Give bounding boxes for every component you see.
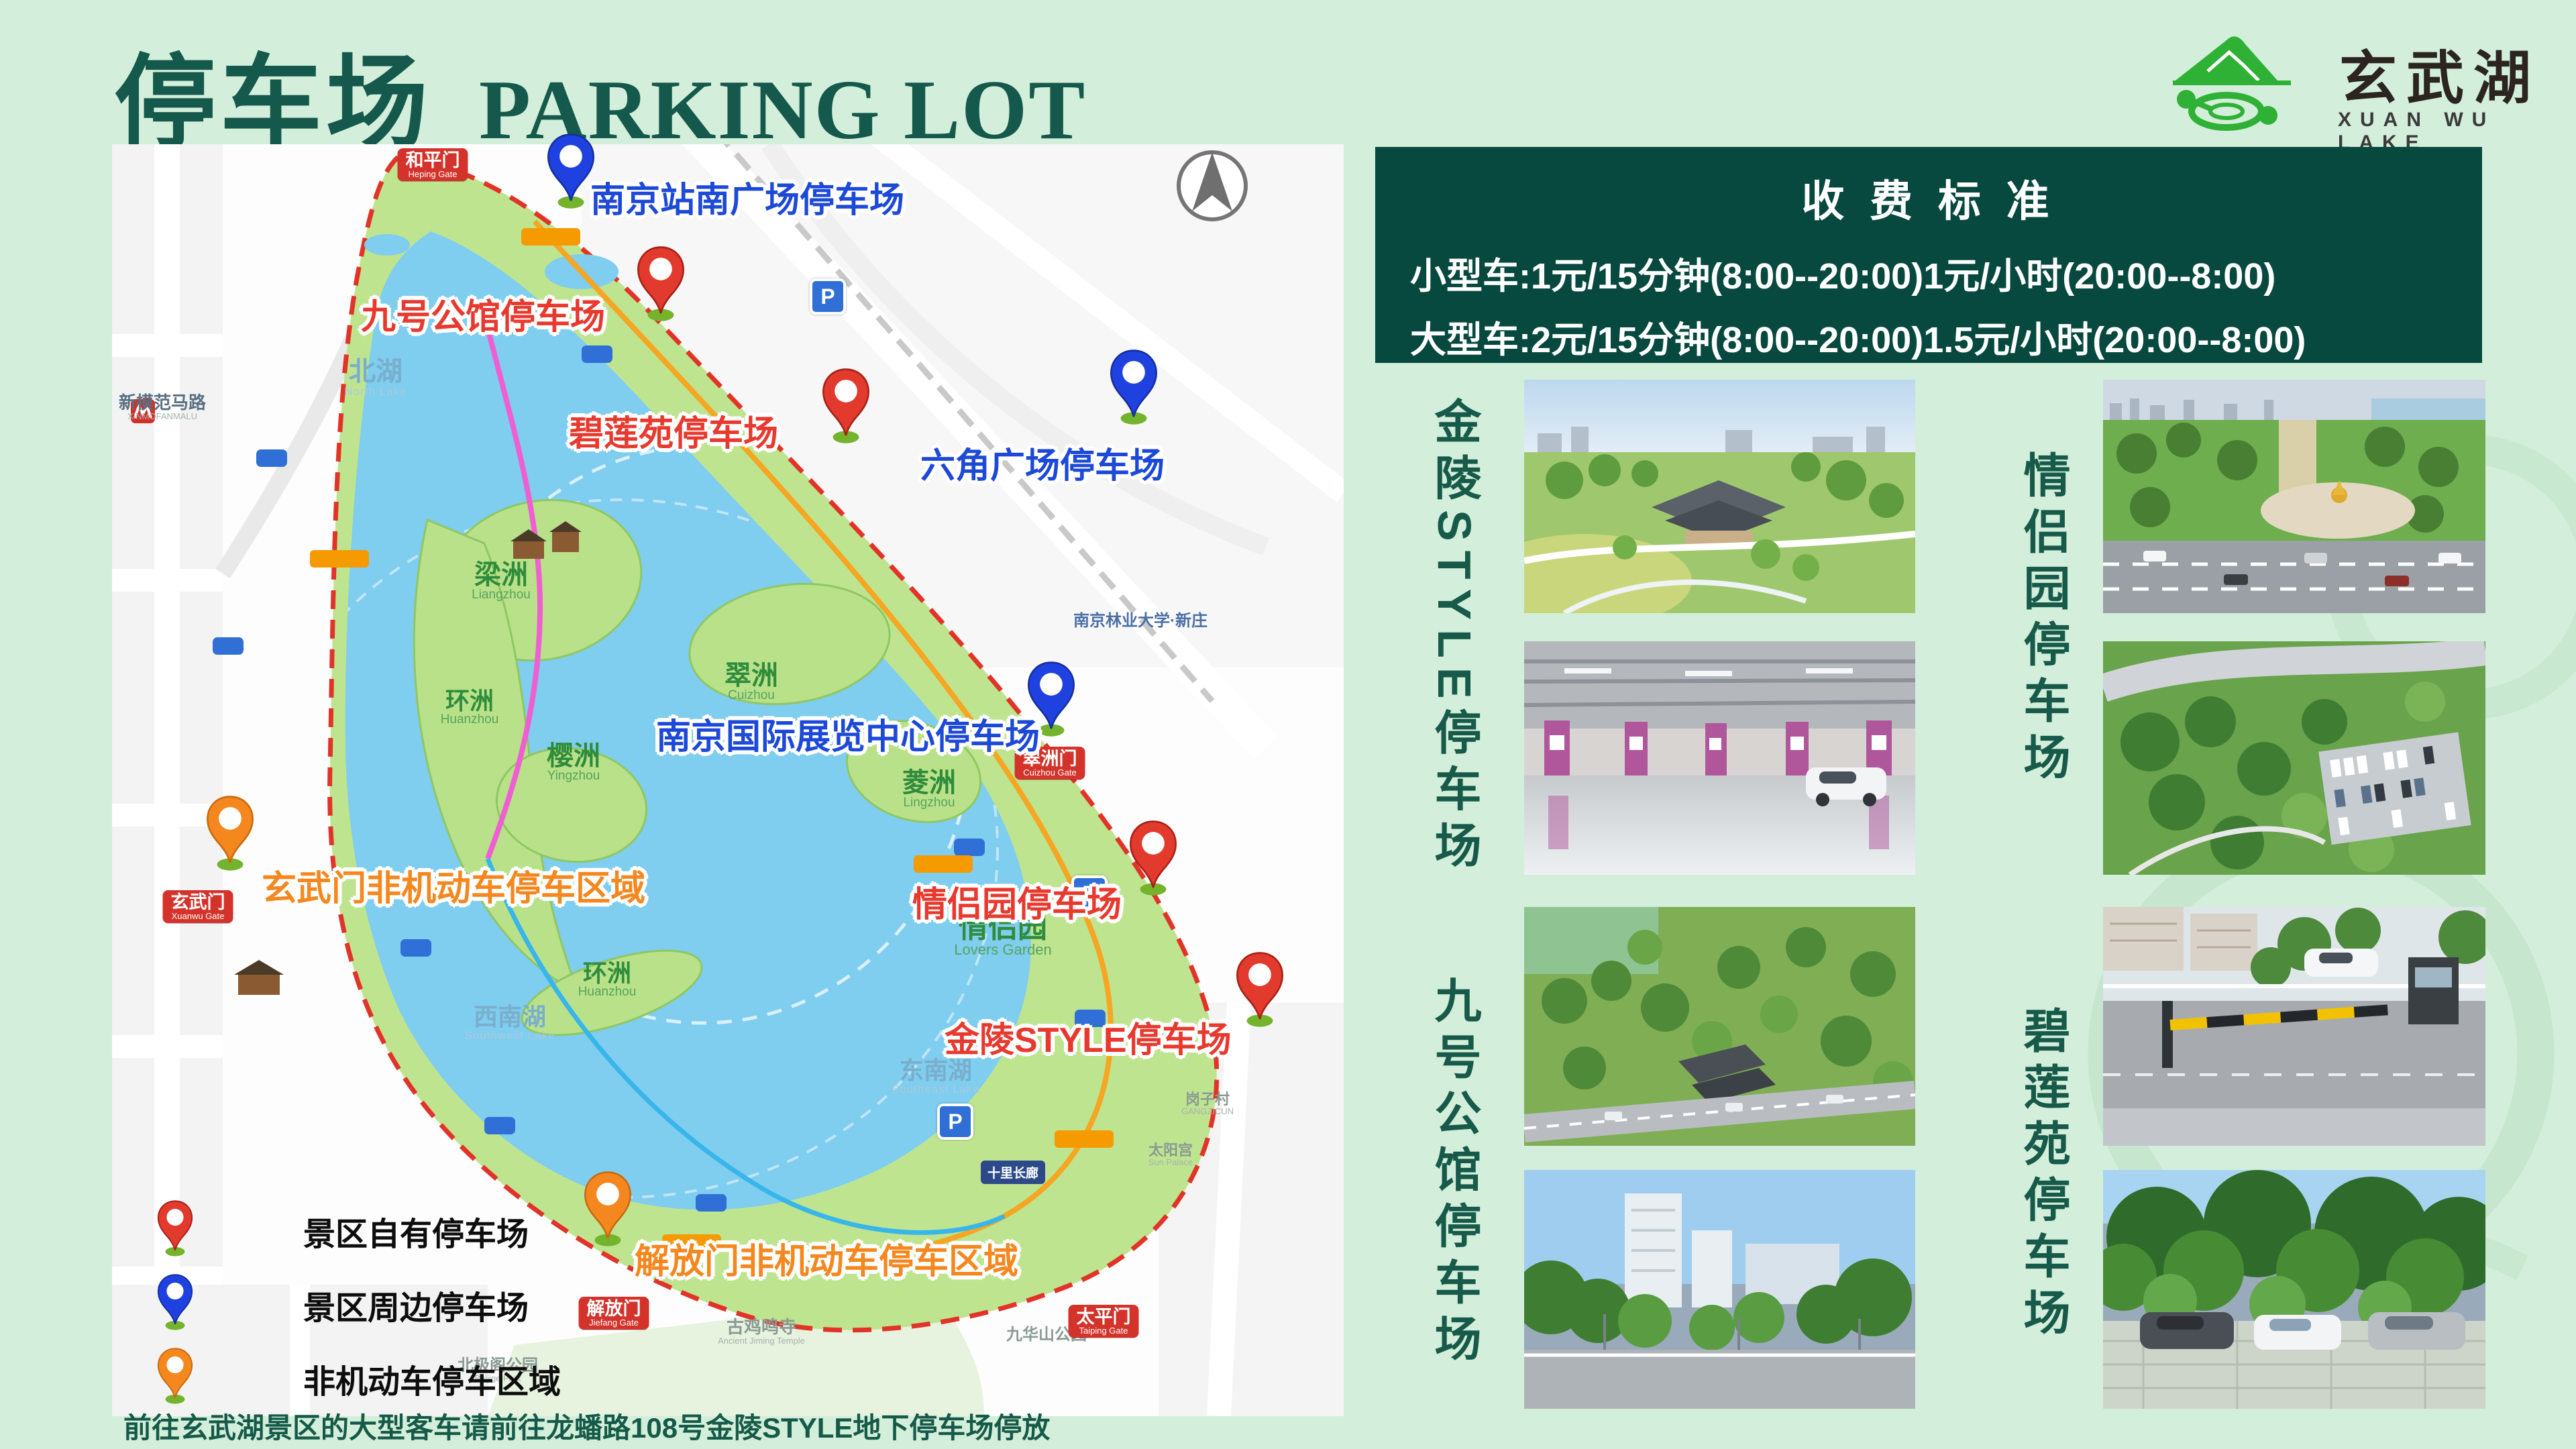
poster-background: 停车场 PARKING LOT 玄武湖 XUAN WU LAKE 收 费 标 准… [0,0,2576,1449]
marker-pin-liujiao-square [1108,349,1160,425]
photo-bilianyuan-parking-lot [2103,1170,2485,1409]
marker-label-nanjing-station: 南京站南广场停车场 [590,172,904,222]
xuanwu-lake-map: 北湖North Lake 西南湖Southwest Lake 东南湖Southe… [112,144,1344,1416]
bus-parking-note: 前往玄武湖景区的大型客车请前往龙蟠路108号金陵STYLE地下停车场停放 [123,1405,1050,1446]
fee-line-small-car: 小型车:1元/15分钟(8:00--20:00)1元/小时(20:00--8:0… [1410,246,2482,299]
marker-label-jiefangmen-bike: 解放门非机动车停车区域 [635,1233,1018,1283]
gallery-label-jiuhao-mansion: 九号公馆停车场 [1421,976,1489,1371]
poi-label-nfu-xinzhuang: 南京林业大学·新庄 [1073,612,1207,629]
legend-label-scenic-own: 景区自有停车场 [303,1207,529,1254]
marker-label-jiuhao-mansion: 九号公馆停车场 [361,288,605,339]
gallery-label-bilianyuan: 碧莲苑停车场 [2010,1006,2078,1344]
marker-label-xuanwumen-bike: 玄武门非机动车停车区域 [262,860,645,910]
photo-lovers-garden-boulevard [2103,380,2485,613]
island-label-yingzhou: 樱洲Yingzhou [547,743,600,782]
island-label-cuizhou: 翠洲Cuizhou [724,662,778,702]
parking-p-icon: P [937,1104,973,1140]
poi-label-sun-palace: 太阳宫Sun Palace [1148,1142,1193,1167]
photo-jiuhao-mansion-aerial [1524,907,1915,1146]
poi-label-xinmofanmalu: 新模范马路XINMOFANMALU [119,394,206,421]
marker-label-bilianyuan: 碧莲苑停车场 [569,405,778,455]
marker-label-exhibition-center: 南京国际展览中心停车场 [656,708,1040,759]
poi-label-gangzicun: 岗子村GANGZICUN [1181,1091,1234,1116]
fee-title: 收 费 标 准 [1375,167,2482,229]
marker-label-jinling-style: 金陵STYLE停车场 [945,1012,1232,1062]
photo-lovers-garden-aerial [2103,641,2485,875]
fee-standard-panel: 收 费 标 准 小型车:1元/15分钟(8:00--20:00)1元/小时(20… [1375,147,2482,363]
legend-label-nearby: 景区周边停车场 [303,1281,529,1328]
island-label-lingzhou: 菱洲Lingzhou [902,769,956,809]
lake-label-southwest: 西南湖Southwest Lake [465,1004,555,1042]
fee-line-large-car: 大型车:2元/15分钟(8:00--20:00)1.5元/小时(20:00--8… [1410,310,2482,363]
parking-p-icon: P [810,278,846,315]
marker-label-lovers-garden: 情侣园停车场 [912,876,1122,926]
logo-name-cn: 玄武湖 [2339,31,2540,115]
xuanwu-lake-logo: 玄武湖 XUAN WU LAKE [2170,27,2546,148]
photo-jinling-style-aerial [1524,380,1915,613]
photo-jinling-style-garage [1524,641,1915,875]
marker-pin-nanjing-station [545,133,597,209]
marker-pin-lovers-garden [1127,820,1179,896]
gate-badge-jiefang: 解放门Jiefang Gate [579,1297,649,1330]
mountain-lake-icon [2170,27,2331,141]
gate-badge-taiping: 太平门Taiping Gate [1069,1305,1139,1338]
lake-label-north: 北湖North Lake [344,358,407,398]
photo-bilianyuan-barrier-gate [2103,907,2485,1146]
legend-label-non-motor: 非机动车停车区域 [303,1355,561,1402]
poi-label-jiming-temple: 古鸡鸣寺Ancient Jiming Temple [718,1318,805,1346]
lake-label-southeast: 东南湖Southeast Lake [892,1058,980,1095]
marker-label-liujiao-square: 六角广场停车场 [920,437,1165,488]
legend-pin-orange [156,1347,195,1405]
island-label-liangzhou: 梁洲Liangzhou [472,561,531,601]
marker-pin-jiuhao-mansion [635,246,687,322]
legend-pin-blue [156,1273,195,1331]
legend-pin-red [156,1199,195,1257]
map-graphic [112,144,1344,1416]
photo-jiuhao-mansion-street [1524,1170,1915,1409]
gate-badge-heping: 和平门Heping Gate [398,148,468,181]
marker-pin-bilianyuan [820,368,872,444]
marker-pin-xuanwumen-bike [204,795,256,871]
marker-pin-jiefangmen-bike [582,1171,634,1247]
gallery-label-lovers-garden: 情侣园停车场 [2010,451,2078,789]
marker-pin-jinling-style [1234,951,1286,1028]
gate-badge-xuanwu: 玄武门Xuanwu Gate [163,890,233,923]
island-label-huanzhou-1: 环洲Huanzhou [441,689,499,726]
poi-badge-shili-corridor: 十里长廊 [981,1161,1045,1184]
gallery-label-jinling-style: 金陵STYLE停车场 [1421,397,1489,877]
island-label-huanzhou-2: 环洲Huanzhou [578,961,637,998]
